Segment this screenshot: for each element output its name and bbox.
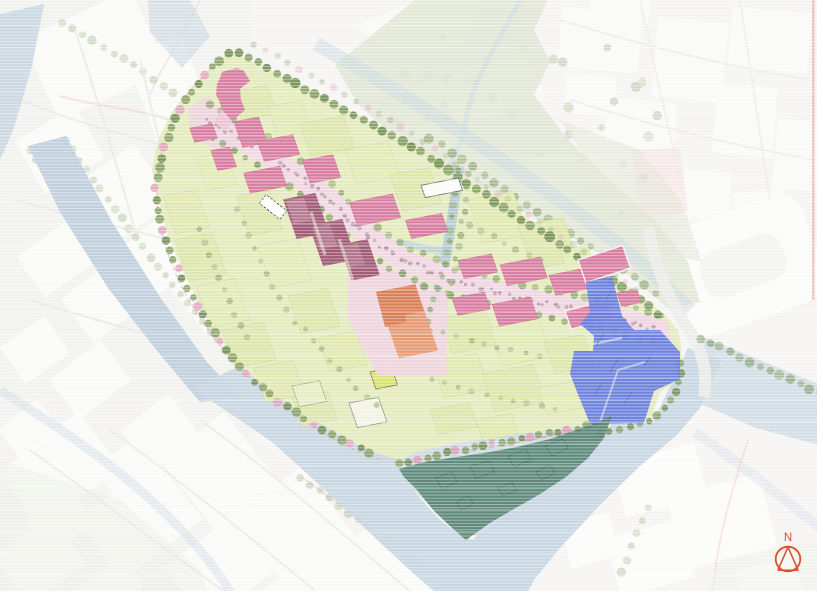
svg-text:N: N <box>784 532 792 544</box>
